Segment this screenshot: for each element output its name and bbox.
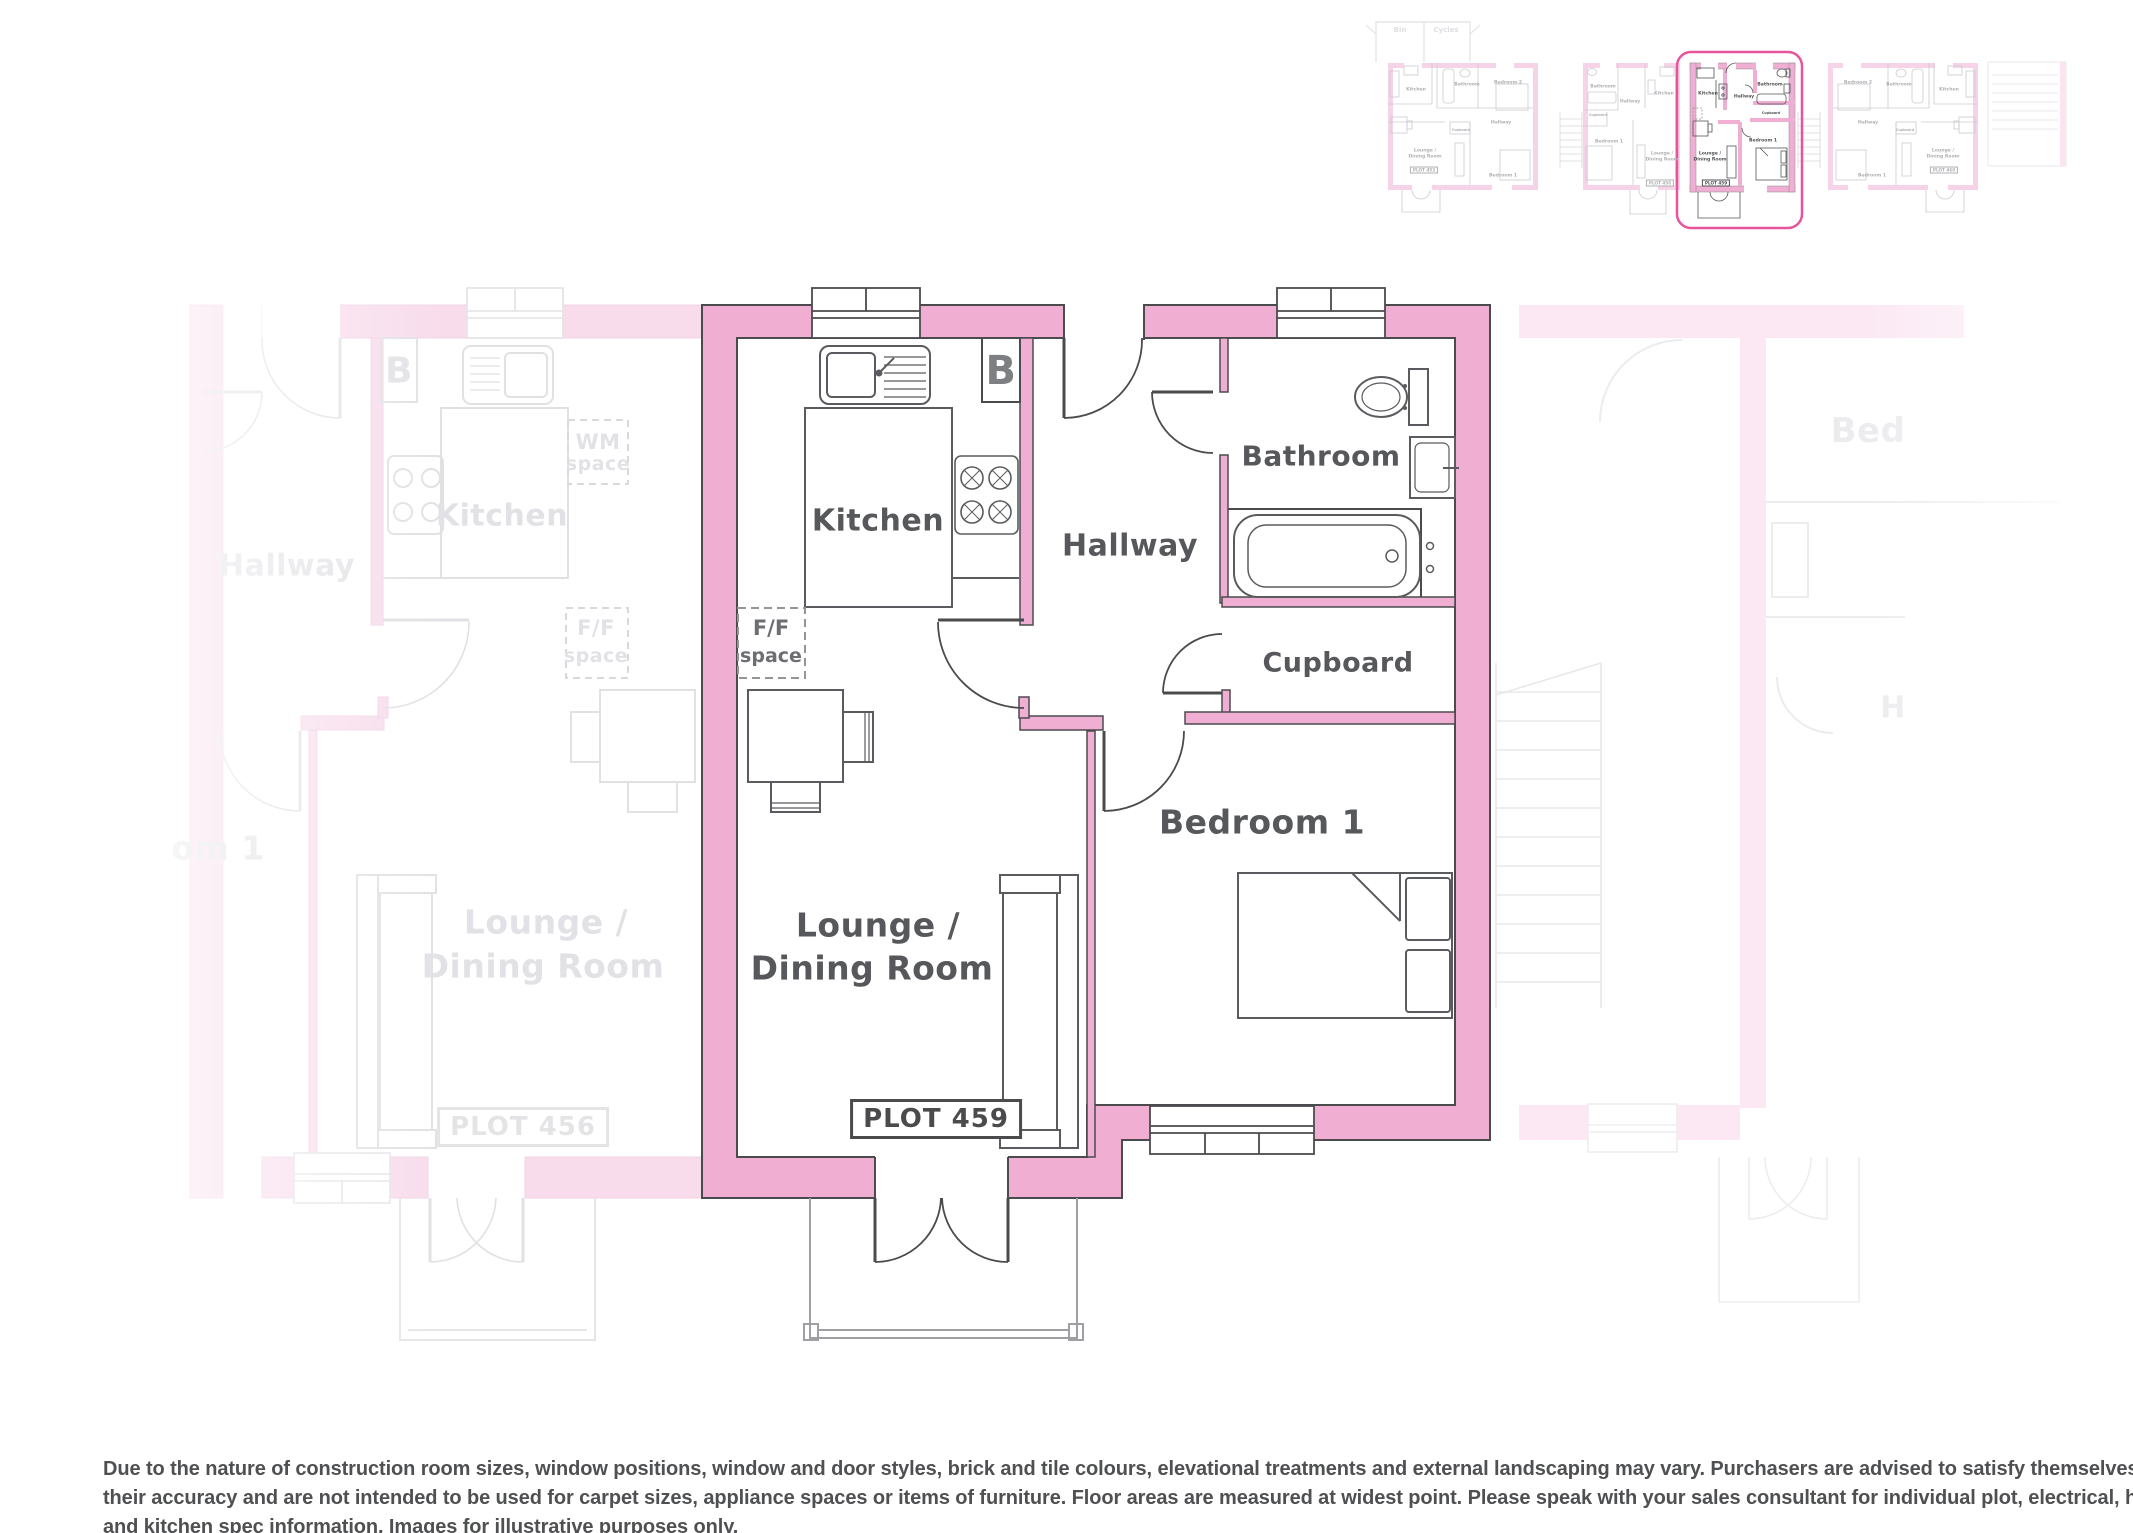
bin-store-label: Bin [1394,26,1407,34]
plot-thumbnail-459[interactable] [1677,52,1802,228]
disclaimer-line-1: Due to the nature of construction room s… [103,1455,2133,1484]
strip-labels-layer: Bin Cycles KitchenBathroomBedroom 2Hallw… [0,0,2133,1533]
plot-thumbnail-456[interactable] [1580,60,1683,215]
disclaimer-text: Due to the nature of construction room s… [103,1455,2133,1533]
plot-thumbnail-460[interactable] [1825,60,1981,215]
plot-thumbnail-453[interactable] [1385,60,1541,215]
floorplan-page: Kitchen Hallway om 1 Lounge / Dining Roo… [0,0,2133,1533]
cycle-store-label: Cycles [1433,26,1458,34]
disclaimer-line-3: and kitchen spec information. Images for… [103,1513,2133,1533]
disclaimer-line-2: their accuracy and are not intended to b… [103,1484,2133,1513]
